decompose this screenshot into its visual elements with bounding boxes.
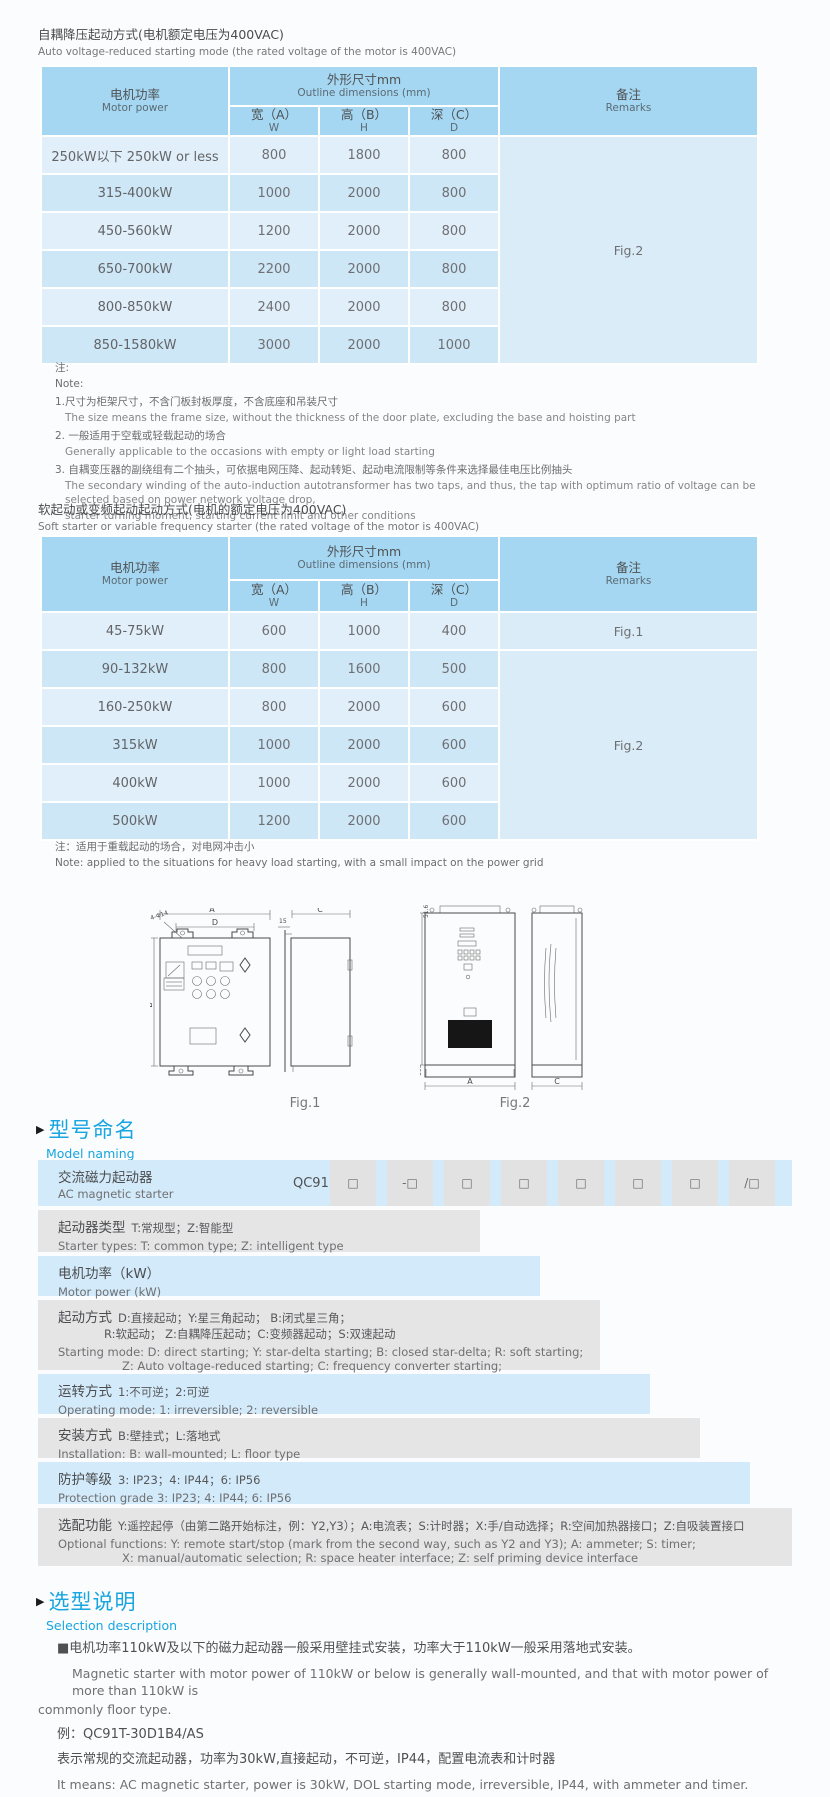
model-naming-table: 交流磁力起动器 AC magnetic starter QC91 □ -□ □ …	[38, 1160, 792, 1570]
col-header-motor-power: 电机功率 Motor power	[41, 66, 229, 136]
fig1-dim-holes: 4-Φ14	[150, 910, 169, 922]
table-row: 45-75kW 600 1000 400 Fig.1	[41, 612, 758, 650]
code-box: -□	[387, 1160, 433, 1206]
note-line: 2. 一般适用于空载或轻载起动的场合	[55, 429, 795, 443]
selection-paragraph-zh: ■电机功率110kW及以下的磁力起动器一般采用壁挂式安装，功率大于110kW一般…	[38, 1640, 798, 1657]
fig2-dim-top: 51.6	[423, 904, 430, 918]
code-box: □	[558, 1160, 604, 1206]
col-header-width: 宽（A）W	[229, 580, 319, 612]
selection-paragraph-en: Magnetic starter with motor power of 110…	[38, 1665, 798, 1699]
selection-example-desc-en: It means: AC magnetic starter, power is …	[38, 1776, 798, 1793]
fig1-caption: Fig.1	[255, 1096, 355, 1111]
code-box: /□	[729, 1160, 775, 1206]
section1-title-en: Auto voltage-reduced starting mode (the …	[38, 46, 456, 58]
naming-row-installation: 安装方式B:壁挂式；L:落地式 Installation: B: wall-mo…	[38, 1418, 700, 1458]
auto-voltage-table: 电机功率 Motor power 外形尺寸mm Outline dimensio…	[40, 65, 759, 365]
note-line: 注：适用于重载起动的场合，对电网冲击小	[55, 840, 544, 854]
selection-example-desc-zh: 表示常规的交流起动器，功率为30kW,直接起动，不可逆，IP44，配置电流表和计…	[38, 1751, 798, 1768]
selection-heading-zh: 选型说明	[48, 1590, 136, 1614]
section2-title: 软起动或变频起动起动方式(电机的额定电压为400VAC) Soft starte…	[38, 499, 479, 533]
table2-note: 注：适用于重载起动的场合，对电网冲击小 Note: applied to the…	[55, 836, 544, 870]
col-header-remarks: 备注 Remarks	[499, 536, 758, 612]
section1-title-zh: 自耦降压起动方式(电机额定电压为400VAC)	[38, 24, 456, 43]
col-header-depth: 深（C）D	[409, 580, 499, 612]
fig1-dim-d: D	[212, 918, 218, 927]
soft-starter-table: 电机功率 Motor power 外形尺寸mm Outline dimensio…	[40, 535, 759, 841]
fig1-dim-c: C	[317, 908, 323, 914]
fig1-front-view: A D 4-Φ14 B	[150, 908, 270, 1075]
model-code: QC91	[293, 1160, 329, 1206]
note-line: 1.尺寸为柜架尺寸，不含门板封板厚度，不含底座和吊装尺寸	[55, 395, 795, 409]
section1-title: 自耦降压起动方式(电机额定电压为400VAC) Auto voltage-red…	[38, 24, 456, 58]
naming-row-starting-mode: 起动方式D:直接起动；Y:星三角起动； B:闭式星三角； R:软起动； Z:自耦…	[38, 1300, 600, 1370]
col-header-height: 高（B）H	[319, 106, 409, 136]
selection-paragraph-en2: commonly floor type.	[38, 1701, 798, 1718]
remarks-fig1: Fig.1	[499, 612, 758, 650]
col-header-motor-power: 电机功率 Motor power	[41, 536, 229, 612]
col-header-remarks: 备注 Remarks	[499, 66, 758, 136]
fig2-dim-a: A	[467, 1077, 473, 1086]
fig2-drawing: 51.6 B 100 A	[420, 888, 670, 1093]
model-naming-heading-zh: 型号命名	[48, 1118, 136, 1142]
selection-body: ■电机功率110kW及以下的磁力起动器一般采用壁挂式安装，功率大于110kW一般…	[38, 1640, 798, 1797]
code-box: □	[444, 1160, 490, 1206]
section2-title-zh: 软起动或变频起动起动方式(电机的额定电压为400VAC)	[38, 499, 479, 518]
section2-title-en: Soft starter or variable frequency start…	[38, 521, 479, 533]
col-header-outline-dimensions: 外形尺寸mm Outline dimensions (mm)	[229, 536, 499, 580]
fig1-dim-a: A	[209, 908, 215, 914]
col-header-depth: 深（C）D	[409, 106, 499, 136]
remarks-fig2: Fig.2	[499, 136, 758, 364]
triangle-marker-icon: ▶	[36, 1595, 44, 1608]
naming-row-protection-grade: 防护等级3: IP23；4: IP44；6: IP56 Protection g…	[38, 1462, 750, 1504]
table-row: 250kW以下 250kW or less 800 1800 800 Fig.2	[41, 136, 758, 174]
col-header-outline-dimensions: 外形尺寸mm Outline dimensions (mm)	[229, 66, 499, 106]
note-line: The size means the frame size, without t…	[55, 411, 795, 425]
note-line: 3. 自耦变压器的副绕组有二个抽头，可依据电网压降、起动转矩、起动电流限制等条件…	[55, 463, 795, 477]
naming-row-operating-mode: 运转方式1:不可逆；2:可逆 Operating mode: 1: irreve…	[38, 1374, 650, 1414]
col-header-height: 高（B）H	[319, 580, 409, 612]
col-header-width: 宽（A）W	[229, 106, 319, 136]
fig1-side-view: 15 C	[278, 908, 352, 1072]
naming-row-product: 交流磁力起动器 AC magnetic starter QC91 □ -□ □ …	[38, 1160, 792, 1206]
model-naming-heading: ▶型号命名 Model naming	[36, 1114, 136, 1161]
triangle-marker-icon: ▶	[36, 1123, 44, 1136]
catalog-page: 自耦降压起动方式(电机额定电压为400VAC) Auto voltage-red…	[0, 0, 830, 1797]
fig2-dim-c: C	[554, 1077, 560, 1086]
note-line: Note:	[55, 377, 795, 391]
naming-row-optional-functions: 选配功能Y:遥控起停（由第二路开始标注，例：Y2,Y3）；A:电流表；S:计时器…	[38, 1508, 792, 1566]
naming-row-starter-type: 起动器类型T:常规型；Z:智能型 Starter types: T: commo…	[38, 1210, 480, 1252]
code-box: □	[330, 1160, 376, 1206]
fig1-dim-b: B	[150, 1002, 154, 1008]
table-row: 90-132kW 800 1600 500 Fig.2	[41, 650, 758, 688]
fig2-dim-b: B	[420, 989, 422, 995]
fig1-drawing: A D 4-Φ14 B	[150, 908, 360, 1078]
naming-row-motor-power: 电机功率（kW） Motor power (kW)	[38, 1256, 540, 1296]
fig1-dim-offset: 15	[279, 918, 287, 925]
fig2-dim-plinth: 100	[420, 1064, 423, 1076]
selection-heading: ▶选型说明 Selection description	[36, 1586, 177, 1633]
fig2-side-view: C	[532, 906, 582, 1090]
remarks-fig2: Fig.2	[499, 650, 758, 840]
selection-example: 例：QC91T-30D1B4/AS	[38, 1726, 798, 1743]
note-line: Note: applied to the situations for heav…	[55, 856, 544, 870]
selection-heading-en: Selection description	[46, 1618, 177, 1633]
fig2-front-view: 51.6 B 100 A	[420, 904, 515, 1090]
note-line: Generally applicable to the occasions wi…	[55, 445, 795, 459]
code-box: □	[615, 1160, 661, 1206]
code-box: □	[501, 1160, 547, 1206]
code-box: □	[672, 1160, 718, 1206]
fig2-caption: Fig.2	[465, 1096, 565, 1111]
note-line: 注:	[55, 361, 795, 375]
model-naming-heading-en: Model naming	[46, 1146, 136, 1161]
